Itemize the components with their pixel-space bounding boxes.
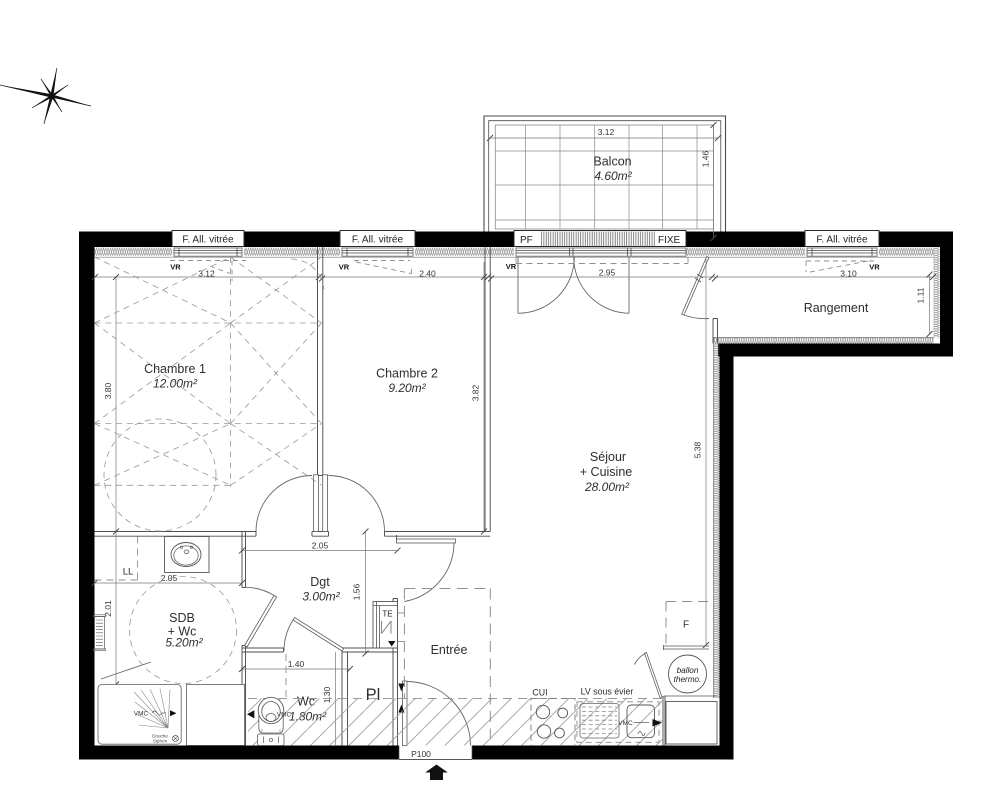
svg-text:SDB: SDB — [169, 611, 195, 625]
svg-text:3.10: 3.10 — [840, 269, 857, 279]
svg-text:28.00m²: 28.00m² — [584, 480, 630, 494]
svg-text:F: F — [683, 620, 689, 631]
svg-text:PF: PF — [520, 235, 533, 246]
svg-text:3.12: 3.12 — [198, 269, 215, 279]
svg-text:2.01: 2.01 — [103, 600, 113, 617]
svg-text:VMC: VMC — [277, 712, 292, 719]
svg-text:1.40: 1.40 — [288, 659, 305, 669]
svg-text:Chambre 2: Chambre 2 — [376, 367, 438, 381]
svg-text:VMC: VMC — [618, 720, 633, 727]
svg-text:3.82: 3.82 — [471, 384, 481, 401]
svg-text:F. All. vitrée: F. All. vitrée — [816, 235, 868, 246]
svg-text:VR: VR — [506, 262, 517, 271]
svg-text:CUI: CUI — [532, 688, 547, 698]
svg-text:5.38: 5.38 — [693, 441, 703, 458]
svg-text:1.56: 1.56 — [352, 583, 362, 600]
svg-text:Séjour: Séjour — [590, 450, 626, 464]
svg-text:2.05: 2.05 — [312, 541, 329, 551]
svg-text:VMC: VMC — [134, 711, 149, 718]
svg-text:VR: VR — [170, 263, 181, 272]
svg-text:9.20m²: 9.20m² — [388, 381, 426, 395]
svg-text:Siphon: Siphon — [153, 739, 168, 744]
svg-text:1.46: 1.46 — [701, 150, 711, 167]
svg-text:+ Cuisine: + Cuisine — [580, 465, 633, 479]
svg-text:2.40: 2.40 — [419, 269, 436, 279]
svg-text:Rangement: Rangement — [804, 301, 869, 315]
svg-text:LL: LL — [123, 567, 134, 578]
svg-text:TE: TE — [382, 610, 392, 619]
svg-text:1.11: 1.11 — [916, 287, 926, 303]
svg-text:Entrée: Entrée — [431, 643, 468, 657]
svg-text:5.20m²: 5.20m² — [165, 636, 203, 650]
svg-text:VR: VR — [339, 263, 350, 272]
svg-text:FIXE: FIXE — [658, 235, 681, 246]
svg-text:3.12: 3.12 — [598, 127, 615, 137]
svg-text:ballon: ballon — [677, 666, 699, 675]
svg-text:P100: P100 — [411, 749, 431, 759]
svg-text:LV sous évier: LV sous évier — [581, 687, 634, 697]
svg-text:Balcon: Balcon — [593, 155, 631, 169]
svg-text:F. All. vitrée: F. All. vitrée — [352, 235, 404, 246]
svg-text:Dgt: Dgt — [310, 575, 330, 589]
svg-text:3.80: 3.80 — [103, 382, 113, 399]
svg-text:4.60m²: 4.60m² — [594, 169, 632, 183]
svg-text:3.00m²: 3.00m² — [302, 590, 340, 604]
svg-text:12.00m²: 12.00m² — [153, 377, 198, 391]
svg-text:F. All. vitrée: F. All. vitrée — [182, 235, 234, 246]
svg-text:2.95: 2.95 — [599, 268, 616, 278]
svg-text:VR: VR — [869, 263, 880, 272]
svg-text:thermo.: thermo. — [674, 675, 702, 684]
